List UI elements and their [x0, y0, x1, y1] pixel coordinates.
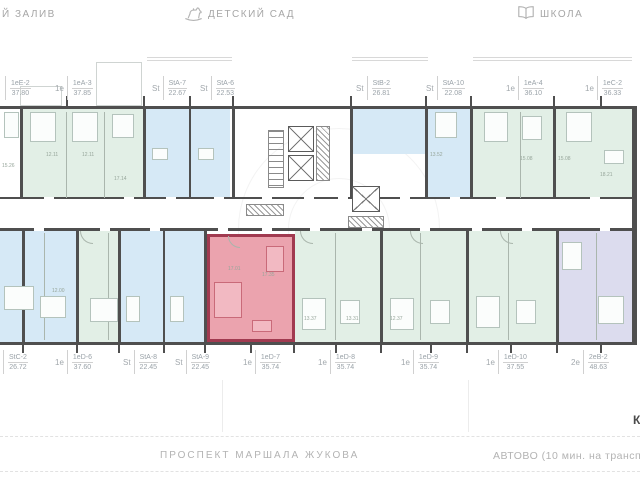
- furniture: [430, 300, 450, 324]
- unit-code-area-fraction: 1еС-2 36.33: [597, 76, 626, 100]
- wall: [0, 106, 637, 109]
- wall: [22, 228, 25, 342]
- furniture: [4, 112, 19, 138]
- unit-code-area-fraction: 1еD-9 35.74: [413, 350, 442, 374]
- door-gap: [450, 197, 460, 199]
- unit-label[interactable]: 1е 1еА-3 37.85: [55, 76, 96, 100]
- furniture: [126, 296, 140, 322]
- wall: [0, 342, 637, 345]
- furniture: [112, 114, 134, 138]
- label-guide-line: [222, 380, 223, 432]
- balcony: [96, 62, 142, 106]
- furniture: [30, 112, 56, 142]
- furniture: [566, 112, 592, 142]
- door-gap: [400, 197, 410, 199]
- wall: [556, 228, 559, 342]
- room-area-value: 13.37: [304, 316, 317, 322]
- unit-label[interactable]: St StB-2 26.81: [356, 76, 394, 100]
- door-gap: [362, 228, 372, 231]
- unit-label-selected[interactable]: 1е 1еD-7 35.74: [243, 350, 284, 374]
- room-area-value: 13.52: [430, 152, 443, 158]
- furniture: [4, 286, 34, 310]
- wall: [204, 228, 207, 342]
- door-gap: [472, 228, 482, 231]
- furniture: [562, 242, 582, 270]
- wall-stub: [380, 345, 382, 353]
- furniture: [90, 298, 118, 322]
- partition: [508, 233, 509, 340]
- room-area-value: 15.08: [520, 156, 533, 162]
- wall-stub: [143, 96, 145, 106]
- unit-code-area-fraction: 1еD-8 35.74: [330, 350, 359, 374]
- room-area-value: 17.35: [262, 272, 275, 278]
- unit-label[interactable]: 1е 1еD-8 35.74: [318, 350, 359, 374]
- wall: [425, 106, 428, 199]
- shaft-hatch: [246, 204, 284, 216]
- wall-stub: [118, 345, 120, 353]
- door-gap: [150, 228, 160, 231]
- apartment-region[interactable]: [121, 231, 163, 342]
- wall: [553, 106, 556, 199]
- unit-label[interactable]: 2е 2еВ-2 48.63: [571, 350, 612, 374]
- elevator: [288, 155, 314, 181]
- furniture: [516, 300, 536, 324]
- staircase: [268, 130, 284, 188]
- metro-distance-label: АВТОВО (10 мин. на трансп: [493, 450, 640, 462]
- partition: [66, 112, 67, 198]
- unit-code-area-fraction: StA-6 22.53: [211, 76, 239, 100]
- door-gap: [34, 228, 44, 231]
- unit-label[interactable]: St StA-10 22.08: [426, 76, 468, 100]
- wall: [470, 106, 473, 199]
- building-floor-plan: 1еЕ-2 37.80 1е 1еА-3 37.85 St StA-7: [0, 0, 640, 420]
- partition: [520, 112, 521, 198]
- furniture: [302, 298, 326, 330]
- door-gap: [44, 197, 54, 199]
- furniture: [152, 148, 168, 160]
- unit-code-area-fraction: 1еD-10 37.55: [498, 350, 531, 374]
- unit-label[interactable]: 1е 1еС-2 36.33: [585, 76, 626, 100]
- wall: [76, 228, 79, 342]
- unit-code-area-fraction: 2еВ-2 48.63: [583, 350, 612, 374]
- room-area-value: 18.21: [600, 172, 613, 178]
- furniture: [522, 116, 542, 140]
- furniture: [435, 112, 457, 138]
- door-gap: [124, 197, 134, 199]
- furniture: [72, 112, 98, 142]
- balcony-rail: [473, 57, 632, 61]
- street-name-label: ПРОСПЕКТ МАРШАЛА ЖУКОВА: [160, 450, 359, 461]
- furniture: [170, 296, 184, 322]
- partition: [108, 233, 109, 340]
- unit-label[interactable]: StC-2 26.72: [3, 350, 31, 374]
- door-gap: [214, 197, 224, 199]
- partition: [335, 233, 336, 340]
- unit-code-area-fraction: 1еА-3 37.85: [67, 76, 96, 100]
- unit-code-area-fraction: StA-10 22.08: [437, 76, 468, 100]
- wall: [466, 228, 469, 342]
- room-area-value: 17.14: [114, 176, 127, 182]
- wall: [118, 228, 121, 342]
- elevator: [352, 186, 380, 212]
- door-gap: [304, 197, 314, 199]
- unit-code-area-fraction: 1еЕ-2 37.80: [5, 76, 34, 100]
- partition: [104, 112, 105, 198]
- unit-code-area-fraction: 1еА-4 36.10: [518, 76, 547, 100]
- unit-label[interactable]: St StA-9 22.45: [175, 350, 213, 374]
- partition: [596, 233, 597, 340]
- unit-label[interactable]: 1е 1еА-4 36.10: [506, 76, 547, 100]
- street-divider-top: [0, 436, 640, 437]
- furniture-selected-unit: [214, 282, 242, 318]
- room-area-value: 17.01: [228, 266, 241, 272]
- wall: [380, 228, 383, 342]
- partition: [420, 233, 421, 340]
- street-divider-bottom: [0, 471, 640, 472]
- door-gap: [262, 197, 272, 199]
- furniture: [598, 296, 624, 324]
- wall: [0, 197, 634, 199]
- furniture: [484, 112, 508, 142]
- unit-code-area-fraction: StA-8 22.45: [134, 350, 162, 374]
- wall-stub: [556, 345, 558, 353]
- door-gap: [600, 228, 610, 231]
- wall: [163, 228, 165, 342]
- unit-code-area-fraction: 1еD-6 37.60: [67, 350, 96, 374]
- room-area-value: 12.37: [390, 316, 403, 322]
- unit-label[interactable]: St StA-7 22.67: [152, 76, 190, 100]
- room-area-value: 15.08: [558, 156, 571, 162]
- wall: [632, 106, 637, 345]
- unit-label[interactable]: 1е 1еD-10 37.55: [486, 350, 531, 374]
- clipped-right-edge-text: К: [633, 413, 640, 427]
- furniture: [604, 150, 624, 164]
- furniture: [40, 296, 66, 318]
- room-area-value: 12.11: [46, 152, 58, 158]
- label-guide-line: [468, 380, 469, 432]
- door-gap: [338, 197, 348, 199]
- elevator: [288, 126, 314, 152]
- shaft-hatch: [316, 126, 330, 181]
- room-area-value: 13.31: [346, 316, 359, 322]
- door-gap: [166, 197, 176, 199]
- wall: [143, 106, 146, 199]
- apartment-region[interactable]: [79, 231, 118, 342]
- wall-stub: [466, 345, 468, 353]
- furniture: [476, 296, 500, 328]
- wall-stub: [293, 345, 295, 353]
- apartment-region[interactable]: [353, 109, 425, 154]
- unit-label[interactable]: 1е 1еD-6 37.60: [55, 350, 96, 374]
- wall-stub: [350, 96, 352, 106]
- door-gap: [262, 228, 272, 231]
- furniture: [390, 298, 414, 330]
- door-gap: [496, 197, 506, 199]
- unit-label[interactable]: St StA-6 22.53: [200, 76, 238, 100]
- wall: [232, 106, 235, 199]
- door-gap: [590, 197, 600, 199]
- wall: [20, 106, 23, 199]
- unit-label[interactable]: St StA-8 22.45: [123, 350, 161, 374]
- furniture: [198, 148, 214, 160]
- wall-stub: [163, 345, 165, 353]
- unit-code-area-fraction: StA-9 22.45: [186, 350, 214, 374]
- unit-code-area-fraction: StC-2 26.72: [3, 350, 31, 374]
- room-area-value: 12.11: [82, 152, 94, 158]
- apartment-region[interactable]: [165, 231, 204, 342]
- unit-code-area-fraction: StB-2 26.81: [367, 76, 395, 100]
- wall: [189, 106, 191, 199]
- unit-code-area-fraction: 1еD-7 35.74: [255, 350, 284, 374]
- wall-stub: [470, 96, 472, 106]
- balcony-rail: [147, 57, 232, 61]
- door-gap: [218, 228, 228, 231]
- balcony-rail: [352, 57, 428, 61]
- room-area-value: 15.26: [2, 163, 15, 169]
- wall-stub: [553, 96, 555, 106]
- furniture-selected-unit: [252, 320, 272, 332]
- unit-code-area-fraction: StA-7 22.67: [163, 76, 191, 100]
- room-area-value: 12.00: [52, 288, 65, 294]
- unit-label[interactable]: 1еЕ-2 37.80: [5, 76, 34, 100]
- door-gap: [522, 228, 532, 231]
- floor-plan-page: Й ЗАЛИВ ДЕТСКИЙ САД ШКОЛА 1еЕ-2 37.: [0, 0, 640, 480]
- unit-label[interactable]: 1е 1еD-9 35.74: [401, 350, 442, 374]
- furniture-selected-unit: [266, 246, 284, 272]
- shaft-hatch: [348, 216, 384, 228]
- partition: [44, 233, 45, 340]
- door-gap: [100, 228, 110, 231]
